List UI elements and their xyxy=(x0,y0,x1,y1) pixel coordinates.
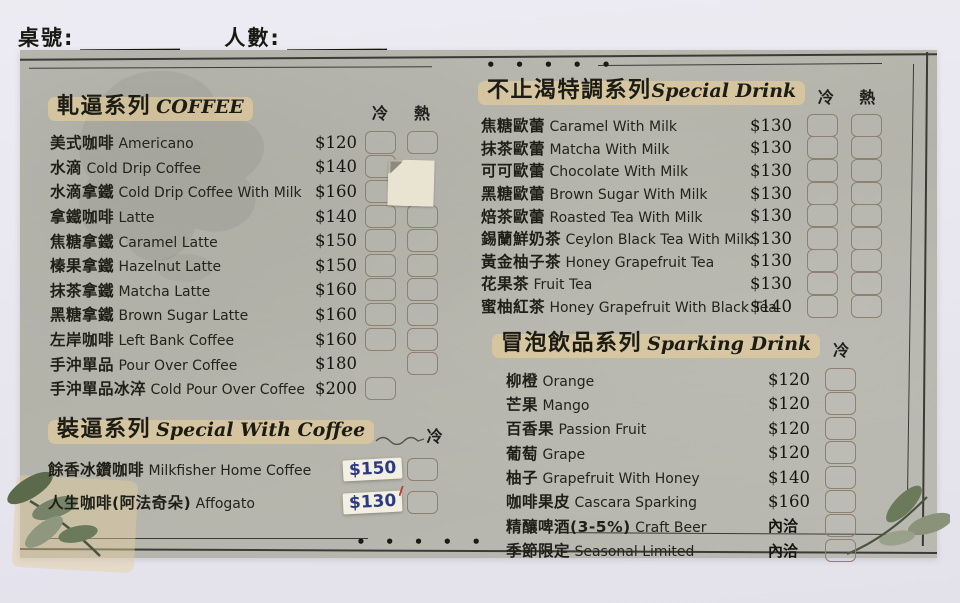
item-name: 蜜柚紅茶 Honey Grapefruit With Black Tea xyxy=(481,295,750,317)
col-header-cold: 冷 xyxy=(426,423,443,447)
menu-item-row: 水滴 Cold Drip Coffee$140 xyxy=(48,155,443,180)
item-name-zh: 水滴拿鐵 xyxy=(50,183,114,201)
menu-item-row: 柚子 Grapefruit With Honey$140 xyxy=(478,465,888,489)
hot-checkbox-cell xyxy=(401,131,443,154)
item-name-zh: 黃金柚子茶 xyxy=(481,253,561,271)
item-name-zh: 柳橙 xyxy=(506,372,538,390)
item-name: 手沖單品冰淬 Cold Pour Over Coffee xyxy=(50,377,315,399)
price-cell: $120 xyxy=(768,370,818,389)
menu-item-row: 葡萄 Grape$120 xyxy=(478,441,888,465)
item-price: $130 xyxy=(750,251,792,270)
section-title-en: Special With Coffee xyxy=(156,419,365,441)
item-name-zh: 可可歐蕾 xyxy=(481,162,545,180)
menu-item-row: 咖啡果皮 Cascara Sparking$160 xyxy=(478,489,888,513)
cold-checkbox[interactable] xyxy=(807,227,838,250)
item-price: $150 xyxy=(315,231,357,250)
hot-checkbox[interactable] xyxy=(851,249,882,272)
item-price: $160 xyxy=(315,330,357,349)
menu-item-row: 百香果 Passion Fruit$120 xyxy=(478,416,888,440)
item-price: $130 xyxy=(750,274,792,293)
cold-checkbox[interactable] xyxy=(807,249,838,272)
item-price: $160 xyxy=(315,305,357,324)
item-price: $200 xyxy=(315,379,357,398)
section-title: 軋逼系列 COFFEE xyxy=(48,88,359,120)
item-name: 餘香冰鑽咖啡 Milkfisher Home Coffee xyxy=(48,458,343,480)
price-cell: $160 xyxy=(315,280,359,299)
item-name-en: Grapefruit With Honey xyxy=(538,471,700,487)
price-cell: $130 xyxy=(750,138,800,157)
cold-checkbox-cell xyxy=(800,295,844,318)
border-line xyxy=(907,64,914,500)
cold-checkbox-cell xyxy=(359,229,401,252)
price-cell: $130 xyxy=(750,116,800,135)
col-header-hot: 熱 xyxy=(401,100,443,124)
cold-checkbox[interactable] xyxy=(365,131,396,154)
section-title-en: Sparking Drink xyxy=(647,333,811,355)
item-name: 美式咖啡 Americano xyxy=(50,131,315,153)
section-title-zh: 冒泡飲品系列 xyxy=(501,331,642,356)
item-name-zh: 季節限定 xyxy=(506,542,570,560)
item-price: $140 xyxy=(315,207,357,226)
cold-checkbox-cell xyxy=(818,441,862,464)
cold-checkbox-cell xyxy=(359,377,401,400)
item-name: 焦糖拿鐵 Caramel Latte xyxy=(50,230,315,252)
cold-checkbox-cell xyxy=(359,278,401,301)
item-price: $130 xyxy=(750,116,792,135)
cold-checkbox-cell xyxy=(401,458,443,481)
item-name-zh: 葡萄 xyxy=(506,445,538,463)
price-cell: $150 xyxy=(315,231,359,250)
hot-checkbox-cell xyxy=(844,136,888,159)
col-header-cold: 冷 xyxy=(359,100,401,124)
item-name: 錫蘭鮮奶茶 Ceylon Black Tea With Milk xyxy=(481,227,750,249)
right-column: • • • • • 不止渴特調系列Special Drink 冷 熱 焦糖歐蕾 … xyxy=(478,56,888,562)
item-name-en: Pour Over Coffee xyxy=(114,358,237,374)
cold-checkbox[interactable] xyxy=(365,254,396,277)
item-name-en: Fruit Tea xyxy=(529,277,592,293)
item-price: $140 xyxy=(768,468,810,487)
price-sticker: $150 xyxy=(342,457,402,481)
hot-checkbox-cell xyxy=(844,227,888,250)
cold-checkbox[interactable] xyxy=(365,377,396,400)
price-cell: 內洽 xyxy=(768,515,818,536)
item-name: 抹茶拿鐵 Matcha Latte xyxy=(50,279,315,301)
hot-checkbox-cell xyxy=(401,205,443,228)
item-name-zh: 手沖單品 xyxy=(50,356,114,374)
price-cell: $140 xyxy=(315,207,359,226)
cold-checkbox-cell xyxy=(359,254,401,277)
cold-checkbox-cell xyxy=(800,204,844,227)
col-header-cold: 冷 xyxy=(820,337,862,361)
price-cell: $160 xyxy=(315,182,359,201)
cold-checkbox[interactable] xyxy=(365,229,396,252)
hot-checkbox[interactable] xyxy=(407,229,438,252)
hot-checkbox-cell xyxy=(844,159,888,182)
cold-checkbox[interactable] xyxy=(825,514,856,537)
item-name-en: Caramel Latte xyxy=(114,235,218,251)
section-header-coffee: 軋逼系列 COFFEE 冷 熱 xyxy=(48,88,443,124)
item-name-zh: 焦糖拿鐵 xyxy=(50,233,114,251)
menu-item-row: 黃金柚子茶 Honey Grapefruit Tea$130 xyxy=(478,250,888,273)
table-number-label: 桌號: xyxy=(18,26,74,50)
item-name-en: Cold Drip Coffee With Milk xyxy=(114,185,302,201)
item-name-en: Cold Drip Coffee xyxy=(82,161,201,177)
item-name-en: Mango xyxy=(538,398,589,414)
price-cell: $160 xyxy=(768,492,818,511)
menu-item-row: 蜜柚紅茶 Honey Grapefruit With Black Tea$140 xyxy=(478,295,888,318)
item-name: 精釀啤酒(3-5%) Craft Beer xyxy=(506,515,768,537)
item-name-zh: 蜜柚紅茶 xyxy=(481,298,545,316)
cold-checkbox-cell xyxy=(800,114,844,137)
price-cell: $150 xyxy=(343,459,401,480)
special-drink-item-list: 焦糖歐蕾 Caramel With Milk$130抹茶歐蕾 Matcha Wi… xyxy=(478,114,888,317)
hot-checkbox-cell xyxy=(401,278,443,301)
cold-checkbox-cell xyxy=(818,392,862,415)
item-price: $160 xyxy=(315,182,357,201)
price-cell: $120 xyxy=(768,443,818,462)
item-name: 焙茶歐蕾 Roasted Tea With Milk xyxy=(481,205,750,227)
item-name-zh: 水滴 xyxy=(50,159,82,177)
cold-checkbox[interactable] xyxy=(825,490,856,513)
cold-checkbox[interactable] xyxy=(825,392,856,415)
cold-checkbox-cell xyxy=(818,368,862,391)
cold-checkbox[interactable] xyxy=(365,278,396,301)
menu-item-row: 拿鐵咖啡 Latte$140 xyxy=(48,204,443,229)
hot-checkbox[interactable] xyxy=(851,272,882,295)
item-name: 人生咖啡(阿法奇朵) Affogato xyxy=(48,491,343,513)
paper-patch xyxy=(387,159,434,206)
item-name-en: Caramel With Milk xyxy=(545,119,677,135)
cold-checkbox[interactable] xyxy=(825,441,856,464)
item-name: 花果茶 Fruit Tea xyxy=(481,272,750,294)
menu-item-row: 餘香冰鑽咖啡 Milkfisher Home Coffee$150 xyxy=(48,453,443,486)
hot-checkbox[interactable] xyxy=(851,159,882,182)
item-price: $130 xyxy=(750,229,792,248)
price-cell: $130 xyxy=(750,251,800,270)
cold-checkbox-cell xyxy=(818,490,862,513)
hot-checkbox[interactable] xyxy=(851,182,882,205)
menu-item-row: 美式咖啡 Americano$120 xyxy=(48,130,443,155)
item-name-en: Latte xyxy=(114,210,154,226)
squiggle-decoration xyxy=(374,433,426,445)
item-name-en: Left Bank Coffee xyxy=(114,333,234,349)
cold-checkbox[interactable] xyxy=(825,466,856,489)
hot-checkbox-cell xyxy=(401,229,443,252)
price-cell: 內洽 xyxy=(768,540,818,561)
hot-checkbox[interactable] xyxy=(407,205,438,228)
item-name-zh: 焦糖歐蕾 xyxy=(481,117,545,135)
menu-item-row: 柳橙 Orange$120 xyxy=(478,367,888,391)
item-name-zh: 拿鐵咖啡 xyxy=(50,208,114,226)
item-name: 焦糖歐蕾 Caramel With Milk xyxy=(481,114,750,136)
item-name: 榛果拿鐵 Hazelnut Latte xyxy=(50,254,315,276)
menu-item-row: 水滴拿鐵 Cold Drip Coffee With Milk$160 xyxy=(48,179,443,204)
item-name: 咖啡果皮 Cascara Sparking xyxy=(506,490,768,512)
cold-checkbox[interactable] xyxy=(407,491,438,514)
price-cell: $120 xyxy=(768,419,818,438)
item-price: $120 xyxy=(768,419,810,438)
item-price: $130 xyxy=(750,161,792,180)
item-name: 葡萄 Grape xyxy=(506,442,768,464)
item-name-en: Matcha With Milk xyxy=(545,142,669,158)
hot-checkbox[interactable] xyxy=(851,227,882,250)
cold-checkbox[interactable] xyxy=(807,295,838,318)
item-price: $130 xyxy=(750,206,792,225)
item-price: $120 xyxy=(768,394,810,413)
item-name: 拿鐵咖啡 Latte xyxy=(50,205,315,227)
item-name-en: Cascara Sparking xyxy=(570,495,697,511)
item-price: $160 xyxy=(315,280,357,299)
item-price: $120 xyxy=(315,133,357,152)
cold-checkbox[interactable] xyxy=(825,368,856,391)
item-name-en: Matcha Latte xyxy=(114,284,210,300)
item-price: $150 xyxy=(315,256,357,275)
item-price: 內洽 xyxy=(768,517,798,535)
hot-checkbox[interactable] xyxy=(407,352,438,375)
item-name-en: Ceylon Black Tea With Milk xyxy=(561,232,752,248)
cold-checkbox-cell xyxy=(818,417,862,440)
hot-checkbox[interactable] xyxy=(407,328,438,351)
item-name-zh: 錫蘭鮮奶茶 xyxy=(481,230,561,248)
price-cell: $120 xyxy=(315,133,359,152)
item-price: $140 xyxy=(315,157,357,176)
item-name-zh: 抹茶歐蕾 xyxy=(481,140,545,158)
hot-checkbox[interactable] xyxy=(851,295,882,318)
item-name-zh: 焙茶歐蕾 xyxy=(481,208,545,226)
section-header-special-drink: 不止渴特調系列Special Drink 冷 熱 xyxy=(478,72,888,108)
cold-checkbox-cell xyxy=(359,303,401,326)
item-name: 手沖單品 Pour Over Coffee xyxy=(50,353,315,375)
menu-item-row: 可可歐蕾 Chocolate With Milk$130 xyxy=(478,159,888,182)
item-name-en: Grape xyxy=(538,447,585,463)
item-name-zh: 咖啡果皮 xyxy=(506,493,570,511)
section-title: 不止渴特調系列Special Drink xyxy=(478,72,805,104)
menu-item-row: 榛果拿鐵 Hazelnut Latte$150 xyxy=(48,253,443,278)
item-name: 可可歐蕾 Chocolate With Milk xyxy=(481,159,750,181)
cold-checkbox-cell xyxy=(800,136,844,159)
item-name-zh: 芒果 xyxy=(506,396,538,414)
item-name: 黑糖歐蕾 Brown Sugar With Milk xyxy=(481,182,750,204)
item-price: $140 xyxy=(750,297,792,316)
border-line xyxy=(921,52,927,546)
item-name: 柳橙 Orange xyxy=(506,369,768,391)
item-name: 水滴拿鐵 Cold Drip Coffee With Milk xyxy=(50,180,315,202)
section-title-zh: 軋逼系列 xyxy=(57,94,151,119)
menu-item-row: 人生咖啡(阿法奇朵) Affogato$130 xyxy=(48,486,443,519)
menu-item-row: 精釀啤酒(3-5%) Craft Beer內洽 xyxy=(478,514,888,538)
cold-checkbox[interactable] xyxy=(807,159,838,182)
cold-checkbox[interactable] xyxy=(807,114,838,137)
cold-checkbox-cell xyxy=(359,205,401,228)
cold-checkbox[interactable] xyxy=(407,458,438,481)
cold-checkbox[interactable] xyxy=(807,136,838,159)
item-name-zh: 柚子 xyxy=(506,469,538,487)
price-cell: $160 xyxy=(315,330,359,349)
people-count-label: 人數: xyxy=(224,26,280,50)
menu-item-row: 焦糖歐蕾 Caramel With Milk$130 xyxy=(478,114,888,137)
cold-checkbox-cell xyxy=(800,182,844,205)
item-name-en: Chocolate With Milk xyxy=(545,164,688,180)
cold-checkbox-cell xyxy=(818,514,862,537)
item-name: 黃金柚子茶 Honey Grapefruit Tea xyxy=(481,250,750,272)
hot-checkbox[interactable] xyxy=(851,136,882,159)
price-sticker: $130 xyxy=(342,490,402,514)
price-cell: $130 xyxy=(750,229,800,248)
table-number-field[interactable] xyxy=(80,29,180,53)
item-name-en: Brown Sugar With Milk xyxy=(545,187,707,203)
coffee-item-list: 美式咖啡 Americano$120水滴 Cold Drip Coffee$14… xyxy=(48,130,443,401)
price-cell: $130 xyxy=(750,161,800,180)
price-cell: $120 xyxy=(768,394,818,413)
item-price: $130 xyxy=(750,138,792,157)
cold-checkbox[interactable] xyxy=(825,417,856,440)
menu-item-row: 左岸咖啡 Left Bank Coffee$160 xyxy=(48,327,443,352)
hot-checkbox[interactable] xyxy=(407,278,438,301)
hot-checkbox[interactable] xyxy=(407,254,438,277)
hot-checkbox[interactable] xyxy=(407,303,438,326)
cold-checkbox[interactable] xyxy=(365,303,396,326)
menu-item-row: 焙茶歐蕾 Roasted Tea With Milk$130 xyxy=(478,204,888,227)
item-name-zh: 餘香冰鑽咖啡 xyxy=(48,461,144,479)
section-title-zh: 裝逼系列 xyxy=(57,417,151,442)
item-name-zh: 黑糖拿鐵 xyxy=(50,306,114,324)
price-cell: $130 xyxy=(343,492,401,513)
item-price: $120 xyxy=(768,443,810,462)
cold-checkbox-cell xyxy=(818,539,862,562)
item-price: $130 xyxy=(750,184,792,203)
menu-item-row: 抹茶拿鐵 Matcha Latte$160 xyxy=(48,278,443,303)
item-name: 抹茶歐蕾 Matcha With Milk xyxy=(481,137,750,159)
menu-item-row: 錫蘭鮮奶茶 Ceylon Black Tea With Milk$130 xyxy=(478,227,888,250)
menu-item-row: 焦糖拿鐵 Caramel Latte$150 xyxy=(48,228,443,253)
item-name-en: Passion Fruit xyxy=(554,422,646,438)
item-name-zh: 黑糖歐蕾 xyxy=(481,185,545,203)
item-name-en: Orange xyxy=(538,374,594,390)
item-name-en: Roasted Tea With Milk xyxy=(545,210,702,226)
price-cell: $180 xyxy=(315,354,359,373)
item-name: 黑糖拿鐵 Brown Sugar Latte xyxy=(50,303,315,325)
menu-item-row: 黑糖拿鐵 Brown Sugar Latte$160 xyxy=(48,302,443,327)
menu-item-row: 黑糖歐蕾 Brown Sugar With Milk$130 xyxy=(478,182,888,205)
item-name-en: Affogato xyxy=(191,496,255,512)
section-title-en: COFFEE xyxy=(156,96,244,118)
price-cell: $130 xyxy=(750,184,800,203)
col-header-hot: 熱 xyxy=(847,84,888,108)
item-name-zh: 花果茶 xyxy=(481,275,529,293)
col-header-cold: 冷 xyxy=(805,84,846,108)
menu-item-row: 抹茶歐蕾 Matcha With Milk$130 xyxy=(478,137,888,160)
item-name-zh: 手沖單品冰淬 xyxy=(50,380,146,398)
cold-checkbox-cell xyxy=(359,328,401,351)
item-name-en: Hazelnut Latte xyxy=(114,259,221,275)
menu-card: 軋逼系列 COFFEE 冷 熱 美式咖啡 Americano$120水滴 Col… xyxy=(20,50,937,558)
item-name-zh: 抹茶拿鐵 xyxy=(50,282,114,300)
price-cell: $200 xyxy=(315,379,359,398)
hot-checkbox-cell xyxy=(844,204,888,227)
menu-item-row: 芒果 Mango$120 xyxy=(478,392,888,416)
special-coffee-item-list: 餘香冰鑽咖啡 Milkfisher Home Coffee$150人生咖啡(阿法… xyxy=(48,453,443,519)
hot-checkbox-cell xyxy=(401,254,443,277)
border-line xyxy=(29,66,432,69)
cold-checkbox[interactable] xyxy=(365,205,396,228)
item-name-en: Honey Grapefruit With Black Tea xyxy=(545,300,777,316)
hot-checkbox-cell xyxy=(844,249,888,272)
price-cell: $140 xyxy=(315,157,359,176)
cold-checkbox[interactable] xyxy=(807,204,838,227)
cold-checkbox-cell xyxy=(800,272,844,295)
hot-checkbox-cell xyxy=(401,352,443,375)
menu-item-row: 手沖單品 Pour Over Coffee$180 xyxy=(48,351,443,376)
hot-checkbox-cell xyxy=(844,295,888,318)
sparking-item-list: 柳橙 Orange$120芒果 Mango$120百香果 Passion Fru… xyxy=(478,367,888,562)
item-price: 內洽 xyxy=(768,542,798,560)
hot-checkbox-cell xyxy=(401,303,443,326)
item-name-en: Craft Beer xyxy=(631,520,707,536)
cold-checkbox[interactable] xyxy=(365,328,396,351)
cold-checkbox-cell xyxy=(800,249,844,272)
item-name-en: Seasonal Limited xyxy=(570,544,694,560)
price-cell: $140 xyxy=(750,297,800,316)
item-name-zh: 美式咖啡 xyxy=(50,134,114,152)
cold-checkbox-cell xyxy=(359,131,401,154)
dots-decoration: • • • • • xyxy=(486,56,888,72)
people-count-field[interactable] xyxy=(287,29,387,53)
order-header: 桌號:人數: xyxy=(18,22,393,52)
section-title: 冒泡飲品系列 Sparking Drink xyxy=(492,325,820,357)
hot-checkbox[interactable] xyxy=(851,204,882,227)
item-name-en: Brown Sugar Latte xyxy=(114,308,248,324)
cold-checkbox-cell xyxy=(401,491,443,514)
item-name-zh: 左岸咖啡 xyxy=(50,331,114,349)
item-name-en: Cold Pour Over Coffee xyxy=(146,382,305,398)
item-name-zh: 精釀啤酒(3-5%) xyxy=(506,518,631,536)
left-column: 軋逼系列 COFFEE 冷 熱 美式咖啡 Americano$120水滴 Col… xyxy=(48,88,443,551)
hot-checkbox-cell xyxy=(844,114,888,137)
price-cell: $130 xyxy=(750,274,800,293)
hot-checkbox[interactable] xyxy=(851,114,882,137)
hot-checkbox-cell xyxy=(401,328,443,351)
item-name-en: Americano xyxy=(114,136,194,152)
cold-checkbox[interactable] xyxy=(807,182,838,205)
item-name: 芒果 Mango xyxy=(506,393,768,415)
item-name: 季節限定 Seasonal Limited xyxy=(506,539,768,561)
item-name: 柚子 Grapefruit With Honey xyxy=(506,466,768,488)
item-name: 水滴 Cold Drip Coffee xyxy=(50,156,315,178)
menu-item-row: 季節限定 Seasonal Limited內洽 xyxy=(478,538,888,562)
cold-checkbox-cell xyxy=(800,159,844,182)
hot-checkbox[interactable] xyxy=(407,131,438,154)
item-name-en: Honey Grapefruit Tea xyxy=(561,255,714,271)
hot-checkbox-cell xyxy=(844,272,888,295)
cold-checkbox[interactable] xyxy=(825,539,856,562)
menu-item-row: 花果茶 Fruit Tea$130 xyxy=(478,272,888,295)
section-header-sparking-drink: 冒泡飲品系列 Sparking Drink 冷 xyxy=(478,325,888,361)
item-name-zh: 人生咖啡(阿法奇朵) xyxy=(48,494,191,512)
cold-checkbox-cell xyxy=(800,227,844,250)
item-name-zh: 百香果 xyxy=(506,420,554,438)
menu-item-row: 手沖單品冰淬 Cold Pour Over Coffee$200 xyxy=(48,376,443,401)
section-title: 裝逼系列 Special With Coffee xyxy=(48,411,374,443)
price-cell: $130 xyxy=(750,206,800,225)
price-cell: $150 xyxy=(315,256,359,275)
price-cell: $160 xyxy=(315,305,359,324)
cold-checkbox[interactable] xyxy=(807,272,838,295)
item-name-zh: 榛果拿鐵 xyxy=(50,257,114,275)
item-price: $120 xyxy=(768,370,810,389)
item-name-en: Milkfisher Home Coffee xyxy=(144,463,311,479)
section-title-zh: 不止渴特調系列 xyxy=(487,78,652,103)
item-price: $180 xyxy=(315,354,357,373)
